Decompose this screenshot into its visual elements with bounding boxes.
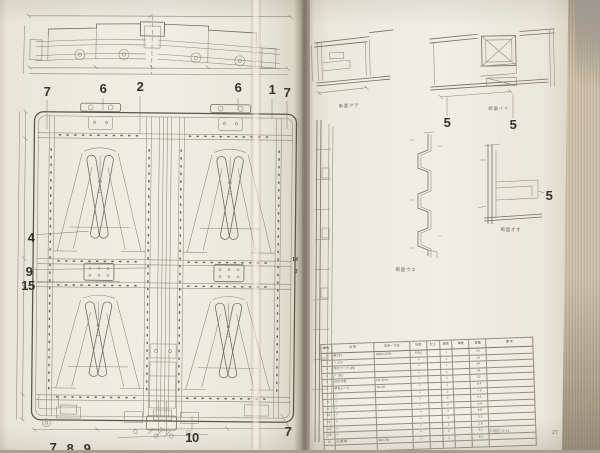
table-header-cell: 員数 xyxy=(439,340,452,349)
table-cell xyxy=(456,441,473,448)
callout-label: 5 xyxy=(444,115,451,130)
table-header-cell: 仕上 xyxy=(427,340,440,349)
callout-label: 6 xyxy=(235,80,242,95)
book-photo-scene: 7 6 2 6 1 7 xyxy=(0,0,600,450)
table-cell xyxy=(443,441,456,448)
book-right-page: 断面アア 断面イイ 5 5 xyxy=(310,0,572,450)
callout-label: 10 xyxy=(185,430,199,445)
callout-label: 9 xyxy=(84,441,91,450)
callout-label: 1 xyxy=(269,82,276,97)
section-detail-a: 断面アア xyxy=(311,30,395,110)
callout-label: 5 xyxy=(546,188,553,203)
detail-caption: 断面ウエ xyxy=(396,266,417,273)
table-cell xyxy=(473,440,490,447)
book-gutter-shadow xyxy=(294,0,314,450)
corner-detail: 断面オオ xyxy=(478,144,544,233)
callout-label: 7 xyxy=(50,440,57,450)
parts-table-grid: 番号名 称形状・寸法材質仕上員数単重重量備 考1扉 (大)1800×2250SS… xyxy=(320,337,537,453)
background-corner xyxy=(576,0,600,95)
table-cell xyxy=(430,442,443,449)
callout-label: 5 xyxy=(510,117,517,132)
callout-label: 8 xyxy=(67,441,74,450)
parts-table: 番号名 称形状・寸法材質仕上員数単重重量備 考1扉 (大)1800×2250SS… xyxy=(320,337,537,453)
section-detail-b: 断面イイ xyxy=(429,29,555,113)
cover-profile-section: 断面ウエ xyxy=(396,132,442,273)
callout-label: 9 xyxy=(26,264,33,279)
table-header-cell: 番号 xyxy=(321,344,332,353)
page-number: 27 xyxy=(552,430,558,436)
callout-label: 7 xyxy=(285,424,292,439)
detail-caption: 断面オオ xyxy=(501,226,522,233)
detail-caption: 断面イイ xyxy=(488,105,509,112)
callout-label: 7 xyxy=(284,85,291,100)
table-cell xyxy=(377,443,413,451)
table-cell xyxy=(324,445,335,452)
callout-label: 15 xyxy=(21,278,35,293)
meeting-stile-lock-detail xyxy=(149,344,176,420)
page-fold-crease xyxy=(251,0,261,450)
book-left-page: 7 6 2 6 1 7 xyxy=(0,0,302,450)
callout-label: 7 xyxy=(44,84,51,99)
callout-label: 4 xyxy=(28,230,36,245)
detail-caption: 断面アア xyxy=(339,102,360,110)
table-cell xyxy=(489,438,536,446)
table-cell xyxy=(335,444,378,452)
callout-label: 2 xyxy=(137,79,144,94)
table-cell xyxy=(413,442,430,449)
callout-label: 6 xyxy=(100,81,107,96)
